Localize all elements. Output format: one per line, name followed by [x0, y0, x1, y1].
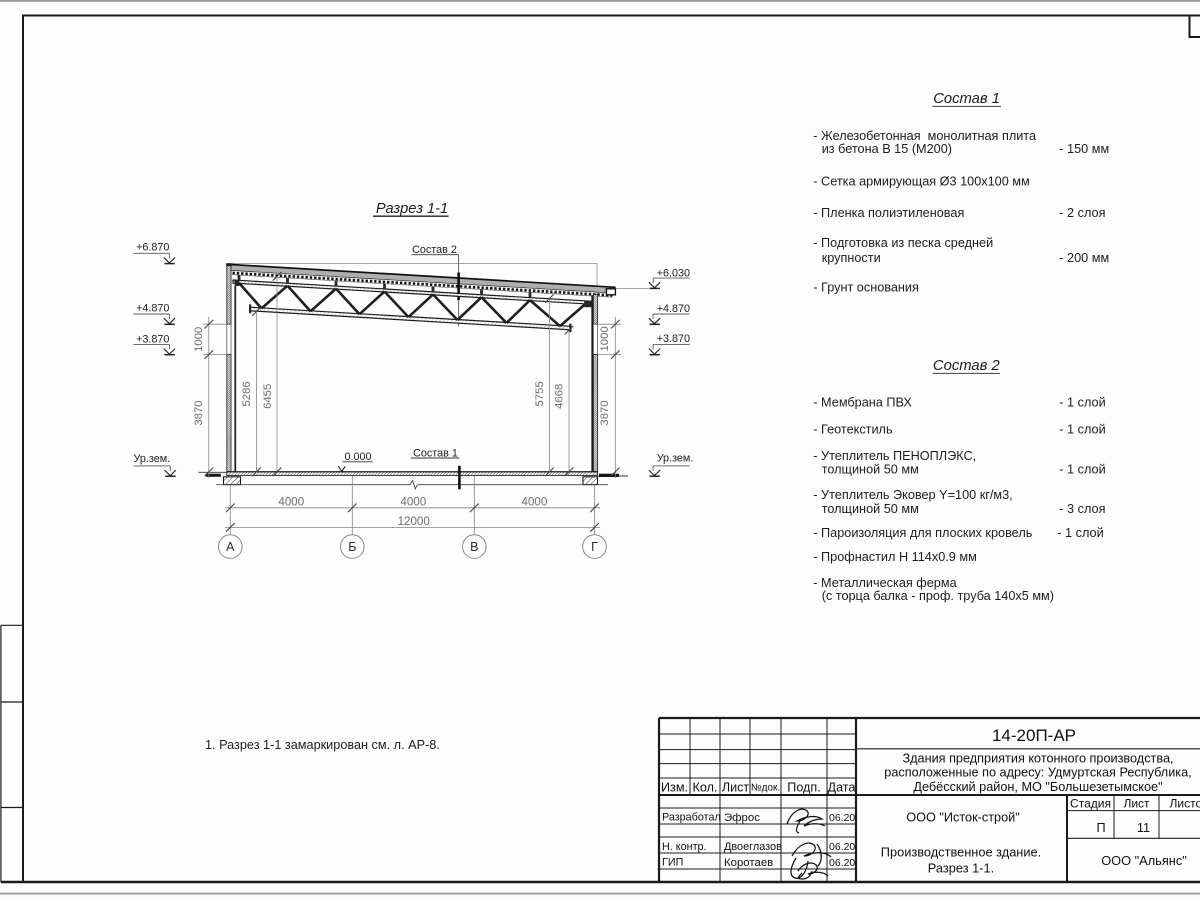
svg-text:- Утеплитель Эковер Y=100 кг/м: - Утеплитель Эковер Y=100 кг/м3,	[813, 488, 1012, 502]
svg-text:Лист: Лист	[722, 780, 750, 794]
svg-text:Н. контр.: Н. контр.	[662, 841, 707, 853]
svg-text:Б: Б	[348, 540, 356, 554]
svg-text:- Геотекстиль: - Геотекстиль	[813, 423, 893, 437]
svg-text:+4.870: +4.870	[657, 303, 690, 315]
svg-text:из бетона В 15 (М200): из бетона В 15 (М200)	[822, 142, 952, 156]
svg-text:- Пароизоляция для плоских кро: - Пароизоляция для плоских кровель	[813, 526, 1032, 540]
svg-text:14-20П-АР: 14-20П-АР	[992, 726, 1076, 745]
svg-text:- Мембрана ПВХ: - Мембрана ПВХ	[813, 396, 912, 410]
svg-text:Разработал: Разработал	[662, 812, 721, 824]
svg-text:4668: 4668	[554, 384, 566, 409]
svg-text:+4.870: +4.870	[136, 303, 169, 315]
svg-text:1000: 1000	[193, 327, 205, 352]
svg-text:ООО "Исток-строй": ООО "Исток-строй"	[906, 811, 1019, 825]
svg-text:Листов: Листов	[1170, 796, 1200, 810]
svg-text:+6.030: +6.030	[657, 268, 690, 280]
svg-text:4000: 4000	[400, 495, 426, 508]
svg-text:Здания предприятия котонного п: Здания предприятия котонного производств…	[902, 751, 1173, 765]
svg-text:расположенные по адресу: Удмур: расположенные по адресу: Удмуртская Респ…	[884, 766, 1191, 780]
svg-text:12000: 12000	[398, 515, 430, 528]
svg-text:ГИП: ГИП	[662, 856, 683, 868]
svg-text:06.20: 06.20	[829, 812, 855, 824]
svg-text:+3.870: +3.870	[657, 333, 690, 345]
svg-text:толщиной 50 мм: толщиной 50 мм	[822, 502, 919, 516]
svg-text:3870: 3870	[599, 400, 611, 425]
svg-text:- 1 слой: - 1 слой	[1059, 423, 1105, 437]
svg-text:- 200 мм: - 200 мм	[1059, 251, 1109, 265]
svg-text:+6.870: +6.870	[136, 242, 169, 254]
svg-text:- 1 слой: - 1 слой	[1057, 526, 1103, 540]
svg-text:- 150 мм: - 150 мм	[1059, 142, 1109, 156]
svg-text:- 1 слой: - 1 слой	[1059, 396, 1105, 410]
svg-text:5755: 5755	[534, 381, 546, 406]
svg-text:Разрез 1-1: Разрез 1-1	[376, 201, 448, 217]
svg-text:11: 11	[1137, 821, 1150, 835]
svg-text:06.20: 06.20	[829, 857, 855, 869]
svg-text:- 1 слой: - 1 слой	[1059, 463, 1105, 477]
svg-text:4000: 4000	[522, 495, 548, 508]
svg-text:Состав 1: Состав 1	[933, 91, 1000, 107]
svg-text:Лист: Лист	[1123, 796, 1150, 810]
svg-text:Эфрос: Эфрос	[724, 812, 760, 824]
svg-text:Кол.: Кол.	[693, 780, 718, 794]
svg-text:- 3 слоя: - 3 слоя	[1059, 502, 1105, 516]
svg-text:- Профнастил Н 114х0.9 мм: - Профнастил Н 114х0.9 мм	[813, 550, 977, 564]
svg-text:4000: 4000	[278, 495, 304, 508]
svg-text:А: А	[226, 540, 235, 554]
svg-text:- Металлическая ферма: - Металлическая ферма	[813, 576, 957, 590]
svg-text:5286: 5286	[241, 381, 253, 406]
svg-text:ООО "Альянс": ООО "Альянс"	[1101, 853, 1187, 868]
svg-text:1000: 1000	[599, 326, 611, 351]
svg-text:Разрез 1-1.: Разрез 1-1.	[928, 861, 994, 876]
svg-text:- Грунт основания: - Грунт основания	[813, 281, 919, 295]
svg-text:Дата: Дата	[828, 780, 856, 794]
svg-text:Дебёсский район, МО "Большезет: Дебёсский район, МО "Большезетымское"	[913, 780, 1162, 794]
svg-text:крупности: крупности	[822, 251, 881, 265]
svg-text:Производственное здание.: Производственное здание.	[881, 844, 1041, 859]
svg-text:3870: 3870	[193, 400, 205, 425]
svg-text:(с торца балка - проф. труба 1: (с торца балка - проф. труба 140х5 мм)	[822, 589, 1054, 603]
svg-text:- Утеплитель ПЕНОПЛЭКС,: - Утеплитель ПЕНОПЛЭКС,	[813, 449, 976, 463]
svg-text:+3.870: +3.870	[136, 334, 169, 346]
svg-text:Ур.зем.: Ур.зем.	[657, 452, 694, 464]
svg-text:- Пленка полиэтиленовая: - Пленка полиэтиленовая	[813, 206, 964, 220]
svg-text:Стадия: Стадия	[1070, 796, 1111, 810]
svg-text:№док.: №док.	[751, 782, 780, 793]
svg-text:Подп.: Подп.	[787, 780, 820, 794]
svg-text:- Подготовка из песка средней: - Подготовка из песка средней	[813, 236, 993, 250]
svg-text:1. Разрез 1-1 замаркирован см.: 1. Разрез 1-1 замаркирован см. л. АР-8.	[205, 738, 440, 752]
svg-text:В: В	[470, 540, 478, 554]
svg-text:- Железобетонная монолитная п: - Железобетонная монолитная плита	[813, 129, 1037, 143]
svg-text:Г: Г	[591, 540, 598, 554]
svg-text:- 2 слоя: - 2 слоя	[1059, 206, 1105, 220]
svg-text:Ур.зем.: Ур.зем.	[134, 453, 171, 465]
svg-text:Коротаев: Коротаев	[724, 857, 773, 869]
svg-text:6455: 6455	[262, 384, 274, 409]
svg-text:Двоеглазов: Двоеглазов	[724, 841, 782, 853]
svg-text:Изм.: Изм.	[661, 780, 688, 794]
svg-text:П: П	[1096, 821, 1105, 835]
svg-text:Состав 2: Состав 2	[933, 358, 1001, 374]
svg-text:- Сетка армирующая Ø3 100х100: - Сетка армирующая Ø3 100х100 мм	[813, 175, 1029, 189]
svg-text:06.20: 06.20	[829, 841, 855, 853]
svg-text:толщиной 50 мм: толщиной 50 мм	[822, 463, 919, 477]
